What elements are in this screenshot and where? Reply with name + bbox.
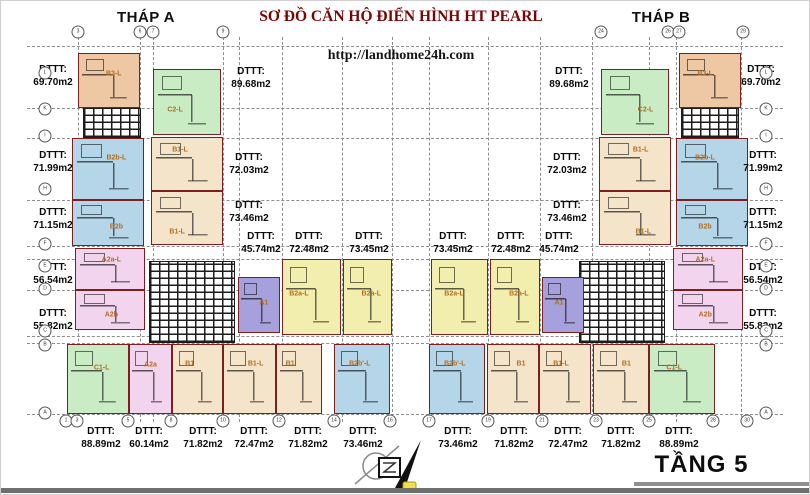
tower-b-title: THÁP B	[611, 9, 711, 26]
area-label-prefix: DTTT:	[229, 199, 268, 212]
unit-label: B2a-L	[362, 291, 381, 298]
grid-bubble: 5	[122, 415, 135, 428]
unit-label: B3-L	[697, 71, 713, 78]
grid-bubble: I	[39, 130, 52, 143]
unit-label: B1	[517, 361, 526, 368]
area-label-prefix: DTTT:	[229, 151, 268, 164]
area-label-value: 89.68m2	[231, 78, 270, 91]
area-label: DTTT:71.15m2	[743, 206, 782, 232]
unit-label: C1-L	[667, 365, 683, 372]
unit-b1: B1	[593, 344, 649, 414]
grid-bubble: 8	[165, 415, 178, 428]
grid-bubble: 17	[423, 415, 436, 428]
area-label: DTTT:73.46m2	[438, 425, 477, 451]
north-arrow-icon	[349, 438, 441, 490]
unit-b1-l: B1-L	[539, 344, 591, 414]
grid-bubble: 9	[217, 26, 230, 39]
unit-label: B2a-L	[444, 291, 463, 298]
grid-bubble: E	[39, 260, 52, 273]
unit-b2b-l: B2b-L	[72, 138, 144, 200]
unit-c1-l: C1-L	[649, 344, 715, 414]
unit-a1: A1	[238, 277, 280, 333]
unit-label: A1	[555, 299, 564, 306]
area-label-value: 72.48m2	[491, 243, 530, 256]
area-label: DTTT:71.99m2	[743, 149, 782, 175]
core-area	[83, 108, 141, 138]
area-label-prefix: DTTT:	[183, 425, 222, 438]
unit-label: B1	[185, 361, 194, 368]
unit-a2a-l: A2a-L	[75, 248, 145, 290]
area-label-prefix: DTTT:	[33, 149, 72, 162]
grid-bubble: 27	[673, 26, 686, 39]
unit-label: B2b	[110, 223, 123, 230]
unit-label: B2a-L	[509, 291, 528, 298]
area-label-value: 88.89m2	[659, 438, 698, 451]
unit-a2b: A2b	[75, 290, 145, 330]
grid-bubble: H	[39, 183, 52, 196]
unit-b1-l: B1-L	[151, 191, 223, 245]
bottom-frame-bar	[1, 488, 810, 493]
area-label: DTTT:72.03m2	[229, 151, 268, 177]
grid-bubble: 25	[643, 415, 656, 428]
unit-a2b: A2b	[673, 290, 743, 330]
area-label-value: 71.82m2	[601, 438, 640, 451]
unit-b1: B1	[276, 344, 322, 414]
area-label-prefix: DTTT:	[129, 425, 168, 438]
area-label-value: 71.82m2	[183, 438, 222, 451]
area-label: DTTT:88.89m2	[659, 425, 698, 451]
unit-label: B2b-L	[695, 155, 715, 162]
area-label-value: 72.03m2	[547, 164, 586, 177]
unit-b1-l: B1-L	[599, 137, 671, 191]
area-label-prefix: DTTT:	[547, 151, 586, 164]
unit-b2a-l: B2a-L	[490, 259, 540, 335]
area-label-value: 71.99m2	[743, 162, 782, 175]
unit-label: C2-L	[638, 106, 654, 113]
unit-b1-l: B1-L	[151, 137, 223, 191]
area-label: DTTT:45.74m2	[241, 230, 280, 256]
grid-bubble: L	[39, 67, 52, 80]
grid-bubble: 16	[384, 415, 397, 428]
tower-a-title: THÁP A	[96, 9, 196, 26]
area-label-value: 72.48m2	[289, 243, 328, 256]
unit-label: B2a-L	[289, 291, 308, 298]
unit-b2b-l: B2b'-L	[429, 344, 485, 414]
area-label-prefix: DTTT:	[494, 425, 533, 438]
grid-bubble: B	[39, 339, 52, 352]
unit-b1-l: B1-L	[223, 344, 276, 414]
area-label-value: 89.68m2	[549, 78, 588, 91]
grid-bubble: L	[760, 67, 773, 80]
area-label-value: 60.14m2	[129, 438, 168, 451]
grid-bubble: H	[760, 183, 773, 196]
unit-label: B2b	[698, 223, 711, 230]
unit-b1: B1	[487, 344, 539, 414]
unit-label: A1	[259, 299, 268, 306]
grid-bubble: F	[760, 238, 773, 251]
area-label-value: 88.89m2	[81, 438, 120, 451]
area-label: DTTT:89.68m2	[549, 65, 588, 91]
grid-bubble: B	[760, 339, 773, 352]
area-label-prefix: DTTT:	[33, 307, 72, 320]
area-label-value: 45.74m2	[539, 243, 578, 256]
area-label: DTTT:71.15m2	[33, 206, 72, 232]
area-label-value: 73.45m2	[433, 243, 472, 256]
gridline-vertical	[392, 37, 393, 422]
watermark-url: http://landhome24h.com	[281, 48, 521, 64]
unit-c1-l: C1-L	[67, 344, 129, 414]
area-label-prefix: DTTT:	[491, 230, 530, 243]
area-label-value: 71.15m2	[33, 219, 72, 232]
core-area	[149, 261, 235, 343]
unit-label: B1-L	[553, 361, 569, 368]
unit-label: B1-L	[636, 228, 652, 235]
unit-label: B1-L	[248, 361, 264, 368]
unit-c2-l: C2-L	[601, 69, 669, 135]
area-label: DTTT:72.47m2	[234, 425, 273, 451]
grid-bubble: D	[760, 283, 773, 296]
area-label: DTTT:88.89m2	[81, 425, 120, 451]
area-label: DTTT:45.74m2	[539, 230, 578, 256]
floor-label: TẦNG 5	[619, 451, 784, 479]
unit-b1: B1	[172, 344, 223, 414]
area-label-value: 73.46m2	[547, 212, 586, 225]
unit-b3-l: B3-L	[679, 53, 741, 108]
grid-bubble: 3	[71, 415, 84, 428]
area-label: DTTT:72.03m2	[547, 151, 586, 177]
area-label-value: 45.74m2	[241, 243, 280, 256]
area-label-value: 73.45m2	[349, 243, 388, 256]
grid-bubble: A	[760, 407, 773, 420]
area-label: DTTT:72.48m2	[491, 230, 530, 256]
area-label-prefix: DTTT:	[743, 307, 782, 320]
area-label-prefix: DTTT:	[659, 425, 698, 438]
grid-bubble: 7	[147, 26, 160, 39]
unit-label: A2a-L	[102, 257, 121, 264]
grid-bubble: 23	[590, 415, 603, 428]
area-label-value: 71.82m2	[494, 438, 533, 451]
grid-bubble: 28	[707, 415, 720, 428]
unit-label: C1-L	[94, 365, 110, 372]
area-label: DTTT:73.46m2	[547, 199, 586, 225]
area-label: DTTT:71.82m2	[601, 425, 640, 451]
unit-label: B2b'-L	[349, 361, 371, 368]
unit-b1-l: B1-L	[599, 191, 671, 245]
unit-label: C2-L	[167, 106, 183, 113]
grid-bubble: 6	[134, 26, 147, 39]
unit-a2a-l: A2a-L	[673, 248, 743, 290]
area-label: DTTT:71.82m2	[494, 425, 533, 451]
grid-bubble: 21	[536, 415, 549, 428]
area-label-prefix: DTTT:	[743, 206, 782, 219]
floorplan-canvas: THÁP A SƠ ĐỒ CĂN HỘ ĐIỂN HÌNH HT PEARL h…	[0, 0, 810, 495]
unit-label: B2b-L	[106, 155, 126, 162]
area-label-prefix: DTTT:	[241, 230, 280, 243]
unit-label: B2b'-L	[444, 361, 466, 368]
area-label: DTTT:60.14m2	[129, 425, 168, 451]
grid-bubble: I	[760, 130, 773, 143]
area-label: DTTT:71.82m2	[183, 425, 222, 451]
area-label-prefix: DTTT:	[81, 425, 120, 438]
grid-bubble: K	[39, 103, 52, 116]
unit-b2b: B2b	[72, 200, 144, 246]
unit-label: B1	[286, 361, 295, 368]
area-label-prefix: DTTT:	[234, 425, 273, 438]
grid-bubble: 19	[482, 415, 495, 428]
unit-c2-l: C2-L	[153, 69, 221, 135]
grid-bubble: 10	[217, 415, 230, 428]
area-label-prefix: DTTT:	[549, 65, 588, 78]
unit-b2b-l: B2b-L	[676, 138, 748, 200]
area-label-value: 72.47m2	[234, 438, 273, 451]
unit-label: B1-L	[172, 147, 188, 154]
area-label-prefix: DTTT:	[343, 425, 382, 438]
area-label-value: 69.70m2	[33, 76, 72, 89]
area-label-prefix: DTTT:	[743, 149, 782, 162]
area-label-value: 71.99m2	[33, 162, 72, 175]
area-label-value: 73.46m2	[229, 212, 268, 225]
area-label-prefix: DTTT:	[539, 230, 578, 243]
area-label-prefix: DTTT:	[433, 230, 472, 243]
unit-b2b: B2b	[676, 200, 748, 246]
unit-label: B1	[622, 361, 631, 368]
area-label: DTTT:71.82m2	[288, 425, 327, 451]
area-label-prefix: DTTT:	[548, 425, 587, 438]
area-label-prefix: DTTT:	[288, 425, 327, 438]
area-label-prefix: DTTT:	[601, 425, 640, 438]
area-label-prefix: DTTT:	[438, 425, 477, 438]
grid-bubble: 24	[595, 26, 608, 39]
floor-underline	[634, 482, 810, 486]
area-label-prefix: DTTT:	[289, 230, 328, 243]
area-label: DTTT:71.99m2	[33, 149, 72, 175]
unit-label: B3-L	[106, 71, 122, 78]
area-label-prefix: DTTT:	[547, 199, 586, 212]
unit-label: A2b	[699, 311, 712, 318]
area-label-value: 73.46m2	[438, 438, 477, 451]
core-area	[681, 108, 739, 138]
grid-bubble: 14	[328, 415, 341, 428]
area-label: DTTT:73.45m2	[349, 230, 388, 256]
grid-bubble: A	[39, 407, 52, 420]
unit-b2a-l: B2a-L	[431, 259, 488, 335]
area-label-prefix: DTTT:	[349, 230, 388, 243]
unit-b2b-l: B2b'-L	[334, 344, 390, 414]
grid-bubble: 30	[741, 415, 754, 428]
grid-bubble: 29	[737, 26, 750, 39]
unit-label: A2a	[144, 362, 157, 369]
unit-a1: A1	[542, 277, 584, 333]
grid-bubble: F	[39, 238, 52, 251]
grid-bubble: 3	[72, 26, 85, 39]
unit-b2a-l: B2a-L	[282, 259, 341, 335]
area-label-value: 71.82m2	[288, 438, 327, 451]
grid-bubble: C	[39, 325, 52, 338]
area-label: DTTT:72.48m2	[289, 230, 328, 256]
grid-bubble: E	[760, 260, 773, 273]
area-label-prefix: DTTT:	[231, 65, 270, 78]
grid-bubble: 12	[273, 415, 286, 428]
area-label: DTTT:72.47m2	[548, 425, 587, 451]
unit-b3-l: B3-L	[78, 53, 140, 108]
grid-bubble: D	[39, 283, 52, 296]
area-label: DTTT:89.68m2	[231, 65, 270, 91]
area-label-prefix: DTTT:	[33, 206, 72, 219]
unit-label: A2b	[105, 311, 118, 318]
unit-label: B1-L	[633, 147, 649, 154]
unit-label: A2a-L	[696, 257, 715, 264]
page-title: SƠ ĐỒ CĂN HỘ ĐIỂN HÌNH HT PEARL	[231, 8, 571, 26]
area-label-value: 71.15m2	[743, 219, 782, 232]
area-label: DTTT:73.46m2	[229, 199, 268, 225]
area-label: DTTT:73.45m2	[433, 230, 472, 256]
unit-b2a-l: B2a-L	[343, 259, 392, 335]
unit-a2a: A2a	[129, 344, 172, 414]
unit-label: B1-L	[169, 228, 185, 235]
core-area	[579, 261, 665, 343]
grid-bubble: C	[760, 325, 773, 338]
area-label-value: 72.03m2	[229, 164, 268, 177]
area-label-value: 72.47m2	[548, 438, 587, 451]
grid-bubble: K	[760, 103, 773, 116]
